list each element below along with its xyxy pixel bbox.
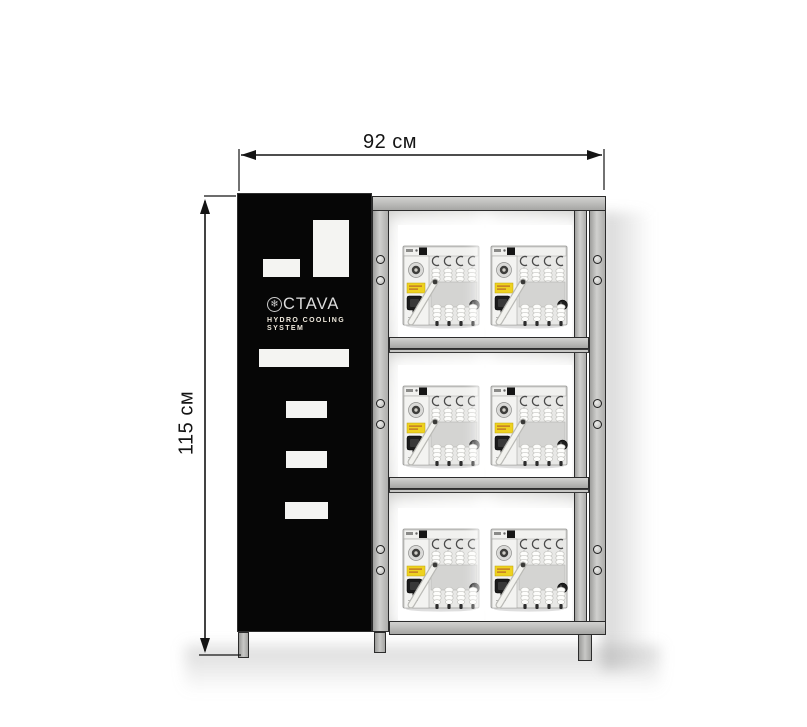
screw-icon	[376, 255, 385, 264]
dimension-lines	[0, 0, 807, 727]
screw-icon	[593, 545, 602, 554]
arrowhead-up-icon	[200, 199, 210, 214]
screw-icon	[593, 566, 602, 575]
arrowhead-left-icon	[241, 150, 256, 160]
width-dimension-label: 92 см	[363, 131, 417, 154]
screw-icon	[593, 276, 602, 285]
arrowhead-right-icon	[587, 150, 602, 160]
screw-icon	[593, 399, 602, 408]
screw-icon	[376, 420, 385, 429]
screw-icon	[593, 255, 602, 264]
arrowhead-down-icon	[200, 638, 210, 653]
height-dimension-label: 115 см	[176, 391, 199, 455]
screw-icon	[376, 545, 385, 554]
screw-icon	[376, 399, 385, 408]
width-dimension-line	[239, 149, 604, 191]
height-dimension-line	[199, 196, 241, 655]
screw-icon	[376, 566, 385, 575]
technical-diagram: 92 см 115 см	[0, 0, 807, 727]
screw-icon	[593, 420, 602, 429]
screw-icon	[376, 276, 385, 285]
